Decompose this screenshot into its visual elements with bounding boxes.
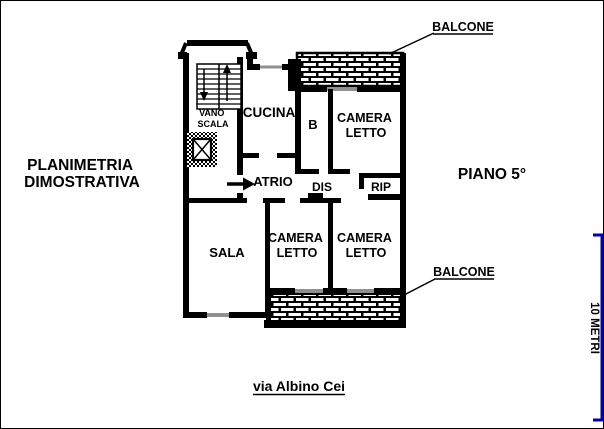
street-label: via Albino Cei bbox=[253, 378, 345, 394]
wall bbox=[328, 203, 333, 289]
room-label-sala: SALA bbox=[209, 245, 245, 260]
floor-label: PIANO 5° bbox=[458, 166, 526, 183]
room-label-dis: DIS bbox=[312, 180, 332, 194]
wall bbox=[265, 288, 295, 294]
balcony-bottom bbox=[264, 294, 406, 328]
staircase bbox=[197, 64, 241, 109]
scale-label: 10 METRI bbox=[588, 302, 600, 354]
room-label-camera-letto-bottom-left: CAMERA LETTO bbox=[268, 231, 326, 260]
wall bbox=[331, 169, 350, 174]
room-label-cucina: CUCINA bbox=[243, 105, 296, 120]
wall bbox=[183, 312, 207, 318]
floor-plan-page: PLANIMETRIA DIMOSTRATIVA PIANO 5° BALCON… bbox=[0, 0, 604, 429]
wall bbox=[359, 173, 400, 178]
wall bbox=[400, 53, 406, 328]
wall bbox=[323, 288, 347, 294]
room-label-atrio: ATRIO bbox=[253, 174, 292, 189]
wall bbox=[264, 320, 406, 328]
wall bbox=[288, 59, 301, 91]
wall bbox=[374, 288, 400, 294]
wall bbox=[277, 153, 295, 158]
balcony-top-label: BALCONE bbox=[432, 20, 494, 34]
room-label-camera-letto-bottom-right: CAMERA LETTO bbox=[337, 231, 395, 260]
entrance-arrow bbox=[227, 178, 255, 191]
balcony-bottom-label: BALCONE bbox=[433, 265, 495, 279]
wall bbox=[301, 86, 327, 92]
room-label-rip: RIP bbox=[371, 180, 391, 194]
wall bbox=[187, 40, 248, 46]
page-title: PLANIMETRIA DIMOSTRATIVA bbox=[24, 157, 140, 191]
room-label-vano-scala: VANO SCALA bbox=[198, 108, 229, 129]
balcony-top-leader-line bbox=[389, 33, 434, 54]
wall bbox=[359, 173, 364, 189]
wall bbox=[368, 194, 400, 200]
wall bbox=[183, 53, 189, 315]
wall bbox=[300, 198, 341, 203]
window-sill bbox=[207, 313, 229, 317]
wall bbox=[247, 64, 260, 70]
wall bbox=[229, 312, 267, 318]
room-label-camera-letto-top: CAMERA LETTO bbox=[337, 111, 395, 140]
wall bbox=[241, 153, 259, 158]
window-sill bbox=[295, 289, 323, 293]
window-sill bbox=[347, 289, 374, 293]
elevator bbox=[187, 132, 217, 167]
room-label-bagno: B bbox=[308, 117, 317, 132]
wall bbox=[295, 89, 301, 171]
wall bbox=[263, 198, 285, 203]
wall bbox=[357, 86, 403, 92]
balcony-top bbox=[297, 53, 403, 86]
wall bbox=[328, 89, 333, 174]
floor-plan-drawing: PLANIMETRIA DIMOSTRATIVA PIANO 5° BALCON… bbox=[1, 1, 603, 428]
wall bbox=[183, 198, 247, 203]
window-sill bbox=[260, 66, 282, 69]
wall bbox=[265, 203, 270, 315]
wall bbox=[295, 169, 319, 174]
balcony-bottom-leader-line bbox=[404, 279, 435, 295]
